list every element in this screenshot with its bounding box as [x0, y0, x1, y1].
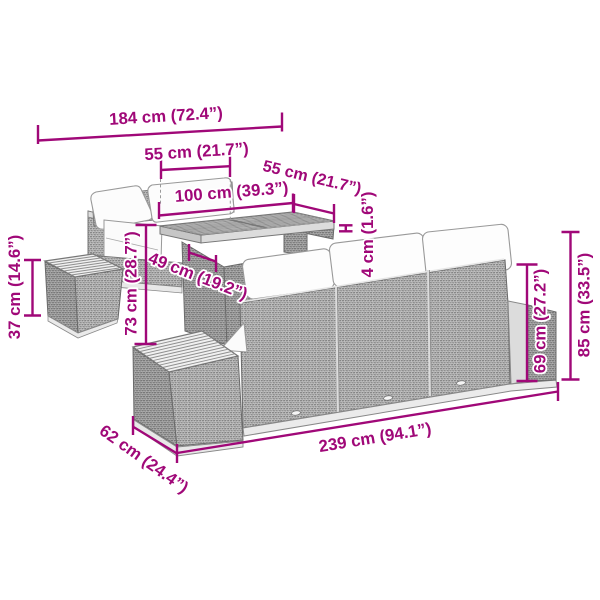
svg-text:37 cm (14.6”): 37 cm (14.6”): [5, 235, 24, 339]
svg-text:4 cm (1.6”): 4 cm (1.6”): [358, 192, 377, 278]
svg-text:69 cm (27.2”): 69 cm (27.2”): [531, 269, 550, 373]
svg-text:85 cm (33.5”): 85 cm (33.5”): [575, 253, 594, 357]
svg-text:73 cm (28.7”): 73 cm (28.7”): [122, 231, 141, 335]
